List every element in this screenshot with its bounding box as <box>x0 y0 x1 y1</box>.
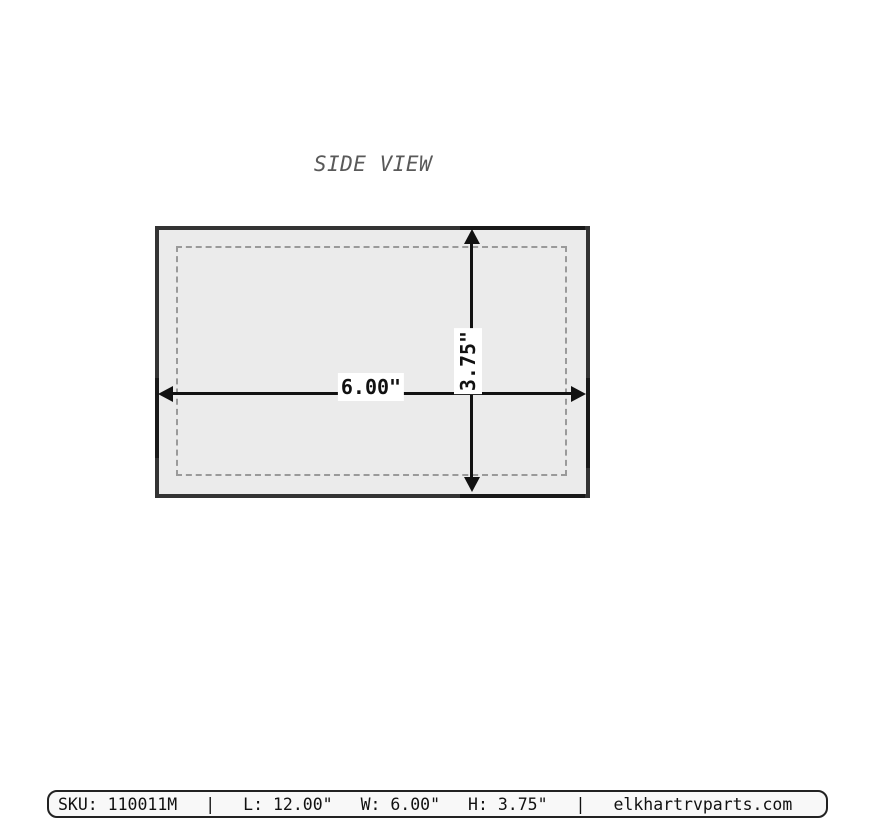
footer-separator: | <box>205 795 215 814</box>
arrow-down-icon <box>464 477 480 492</box>
footer-info-bar: SKU: 110011M | L: 12.00" W: 6.00" H: 3.7… <box>47 790 828 818</box>
height-dimension-label: 3.75" <box>454 328 482 394</box>
arrow-left-icon <box>158 386 173 402</box>
footer-sku: SKU: 110011M <box>58 795 177 814</box>
inner-dashed-rect <box>176 246 567 476</box>
footer-height: H: 3.75" <box>468 795 547 814</box>
footer-width: W: 6.00" <box>361 795 440 814</box>
footer-length: L: 12.00" <box>243 795 332 814</box>
view-title: SIDE VIEW <box>314 152 432 176</box>
arrow-up-icon <box>464 229 480 244</box>
footer-separator: | <box>576 795 586 814</box>
arrow-right-icon <box>571 386 586 402</box>
dimension-diagram-page: SIDE VIEW 6.00" 3.75" SKU: 110011M | L: … <box>0 0 888 826</box>
width-dimension-label: 6.00" <box>338 373 404 401</box>
outline-accent-bottom <box>460 494 585 498</box>
footer-website: elkhartrvparts.com <box>613 795 792 814</box>
outline-accent-right <box>586 378 590 468</box>
